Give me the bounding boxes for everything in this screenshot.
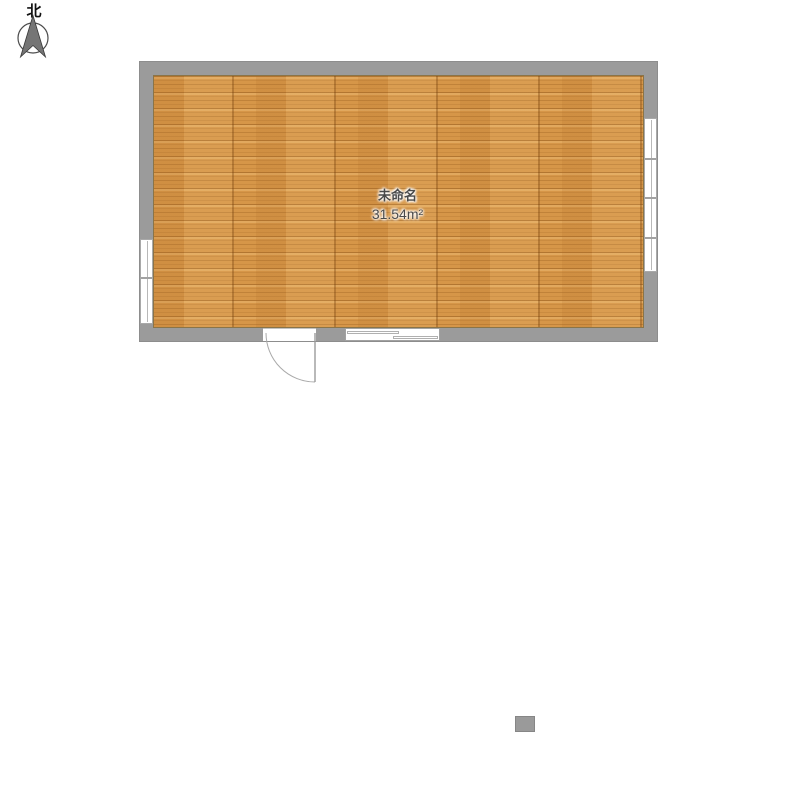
window-pane: [347, 331, 399, 334]
floor-plan-canvas: 北 未命名 31.54m²: [0, 0, 800, 800]
window-divider: [645, 158, 656, 160]
window-left[interactable]: [140, 239, 153, 324]
window-glass-line: [147, 241, 148, 322]
window-divider: [645, 237, 656, 239]
window-divider: [141, 277, 152, 279]
window-pane: [393, 336, 438, 339]
door-opening[interactable]: [263, 328, 316, 341]
window-bottom-sliding[interactable]: [345, 328, 440, 341]
window-glass-line: [651, 120, 652, 270]
window-right[interactable]: [644, 118, 657, 272]
compass-north-arrow-icon: [8, 0, 60, 62]
window-divider: [645, 197, 656, 199]
room-floor[interactable]: [153, 75, 644, 328]
column-marker[interactable]: [515, 716, 535, 732]
compass: 北: [8, 0, 60, 62]
